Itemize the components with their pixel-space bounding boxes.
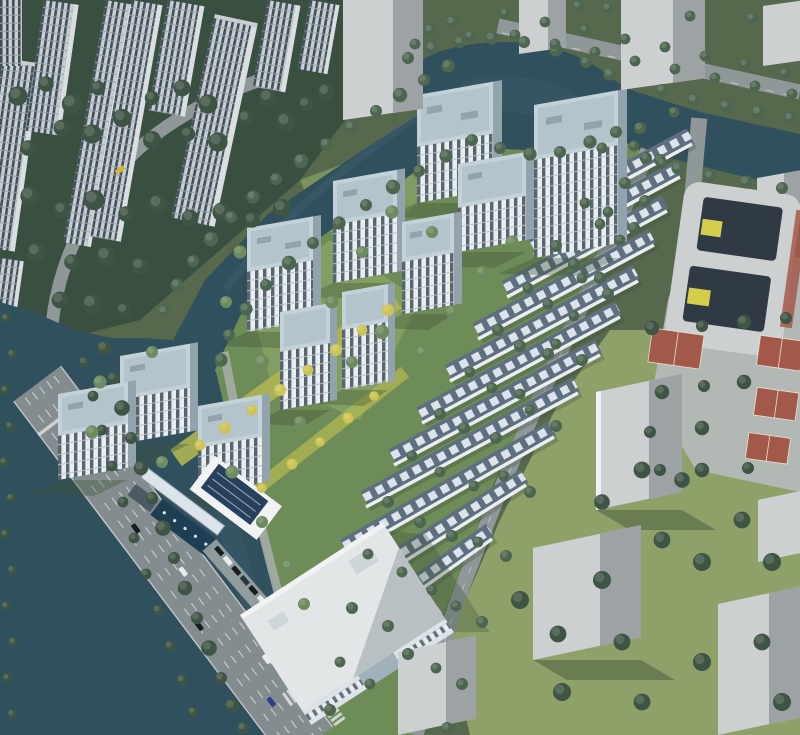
school-building <box>663 180 800 359</box>
context-building-block <box>763 1 800 66</box>
masterplan-rendering <box>0 0 800 735</box>
context-building-block <box>758 491 800 562</box>
courtyard-accent <box>701 219 723 238</box>
rendering-canvas <box>0 0 800 735</box>
courtyard-accent <box>687 287 711 306</box>
context-building-block <box>718 587 800 735</box>
